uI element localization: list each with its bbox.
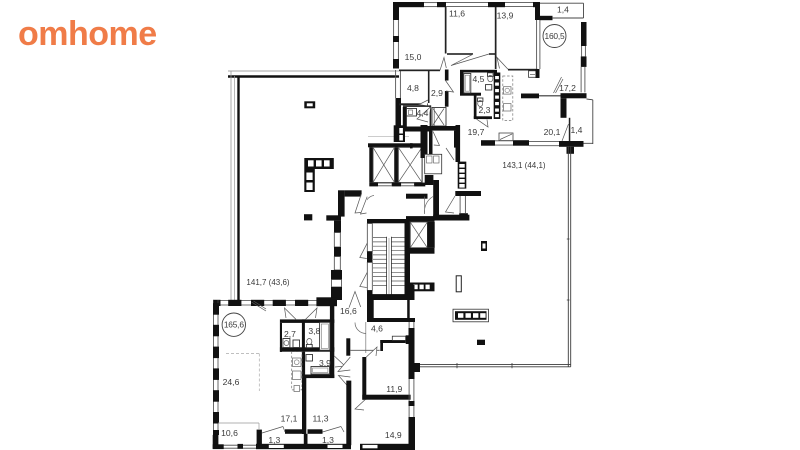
svg-text:4,5: 4,5 (473, 74, 485, 84)
svg-text:24,6: 24,6 (223, 377, 240, 387)
svg-text:15,0: 15,0 (405, 52, 422, 62)
svg-text:10,6: 10,6 (221, 428, 238, 438)
svg-text:3,8: 3,8 (308, 326, 320, 336)
svg-text:17,2: 17,2 (559, 83, 576, 93)
svg-text:20,1: 20,1 (544, 127, 561, 137)
svg-text:165,6: 165,6 (224, 320, 245, 330)
svg-text:3,9: 3,9 (319, 358, 331, 368)
svg-text:19,7: 19,7 (468, 127, 485, 137)
svg-text:4,6: 4,6 (371, 323, 383, 333)
svg-text:4,8: 4,8 (407, 83, 419, 93)
svg-text:1,3: 1,3 (322, 435, 334, 445)
svg-text:2,7: 2,7 (284, 329, 296, 339)
svg-text:1,4: 1,4 (557, 5, 569, 15)
svg-text:13,9: 13,9 (497, 11, 514, 21)
svg-text:11,3: 11,3 (312, 414, 328, 424)
svg-text:11,6: 11,6 (449, 9, 465, 19)
svg-text:16,6: 16,6 (340, 306, 357, 316)
svg-text:omhome: omhome (18, 15, 157, 53)
svg-text:17,1: 17,1 (281, 414, 298, 424)
svg-text:4,4: 4,4 (417, 108, 429, 118)
svg-text:2,9: 2,9 (431, 88, 443, 98)
svg-text:160,5: 160,5 (545, 31, 566, 41)
svg-text:143,1 (44,1): 143,1 (44,1) (502, 161, 545, 170)
svg-text:1,3: 1,3 (268, 435, 280, 445)
svg-text:14,9: 14,9 (385, 430, 402, 440)
svg-text:11,9: 11,9 (386, 384, 402, 394)
svg-text:141,7 (43,6): 141,7 (43,6) (246, 278, 289, 287)
svg-text:1,4: 1,4 (571, 125, 583, 135)
svg-text:2,3: 2,3 (479, 105, 491, 115)
